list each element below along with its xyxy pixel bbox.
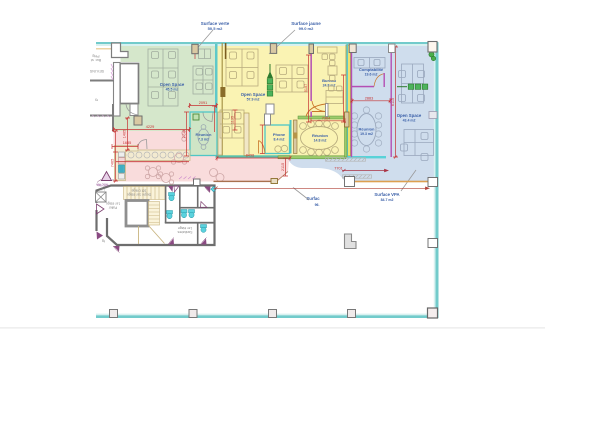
svg-text:6115: 6115 bbox=[391, 98, 395, 106]
svg-text:fg: fg bbox=[102, 239, 105, 243]
svg-text:Réunion: Réunion bbox=[359, 127, 376, 132]
svg-text:Open Space: Open Space bbox=[397, 113, 422, 118]
svg-text:Open Space: Open Space bbox=[241, 92, 266, 97]
svg-text:ry: ry bbox=[95, 98, 98, 102]
svg-text:7701: 7701 bbox=[334, 166, 343, 170]
svg-text:24.8 m2: 24.8 m2 bbox=[323, 84, 336, 88]
svg-text:14.8 m2: 14.8 m2 bbox=[314, 139, 327, 143]
svg-text:4229: 4229 bbox=[146, 125, 155, 129]
svg-text:7465: 7465 bbox=[111, 159, 115, 168]
svg-text:2115: 2115 bbox=[281, 163, 285, 171]
svg-text:19.3 m2: 19.3 m2 bbox=[360, 132, 373, 136]
svg-text:1405: 1405 bbox=[123, 130, 127, 139]
svg-text:1135: 1135 bbox=[230, 116, 234, 124]
svg-text:96.: 96. bbox=[315, 203, 320, 207]
svg-text:Surfac: Surfac bbox=[306, 196, 320, 201]
svg-text:5157: 5157 bbox=[304, 84, 308, 93]
svg-text:8498: 8498 bbox=[246, 154, 255, 158]
svg-text:2883: 2883 bbox=[365, 97, 374, 101]
svg-text:7.3 m2: 7.3 m2 bbox=[198, 138, 209, 142]
svg-text:ASC-Wa: ASC-Wa bbox=[97, 184, 109, 188]
svg-text:1er étage: 1er étage bbox=[106, 202, 120, 206]
svg-text:7364: 7364 bbox=[322, 117, 331, 121]
svg-text:1 1: 1 1 bbox=[101, 188, 106, 192]
svg-text:SEV-INS: SEV-INS bbox=[89, 69, 104, 73]
svg-text:99.0 m2: 99.0 m2 bbox=[299, 26, 314, 31]
svg-text:Surface VPA: Surface VPA bbox=[374, 192, 399, 197]
svg-text:1685: 1685 bbox=[123, 141, 132, 145]
svg-text:50.5 m2: 50.5 m2 bbox=[208, 26, 223, 31]
svg-text:84.7 m2: 84.7 m2 bbox=[381, 198, 394, 202]
svg-text:2718: 2718 bbox=[182, 130, 186, 139]
svg-text:Bur. st: Bur. st bbox=[91, 58, 101, 62]
svg-text:Surface verte: Surface verte bbox=[201, 21, 230, 26]
svg-text:43.4 m2: 43.4 m2 bbox=[403, 119, 416, 123]
svg-text:Réunion: Réunion bbox=[312, 133, 329, 138]
svg-text:57.9 m2: 57.9 m2 bbox=[247, 98, 260, 102]
svg-text:8.4 m2: 8.4 m2 bbox=[274, 138, 285, 142]
svg-text:2091: 2091 bbox=[199, 101, 208, 105]
svg-text:Open Space: Open Space bbox=[160, 82, 185, 87]
svg-text:1er étage: 1er étage bbox=[178, 226, 192, 230]
svg-text:Phone: Phone bbox=[273, 132, 286, 137]
svg-text:PHg: PHg bbox=[93, 54, 100, 58]
svg-text:16t Orège: 16t Orège bbox=[131, 189, 146, 193]
svg-text:Surface jaune: Surface jaune bbox=[291, 21, 321, 26]
svg-text:19.6 m2: 19.6 m2 bbox=[365, 73, 378, 77]
svg-text:45.5 m2: 45.5 m2 bbox=[166, 88, 179, 92]
